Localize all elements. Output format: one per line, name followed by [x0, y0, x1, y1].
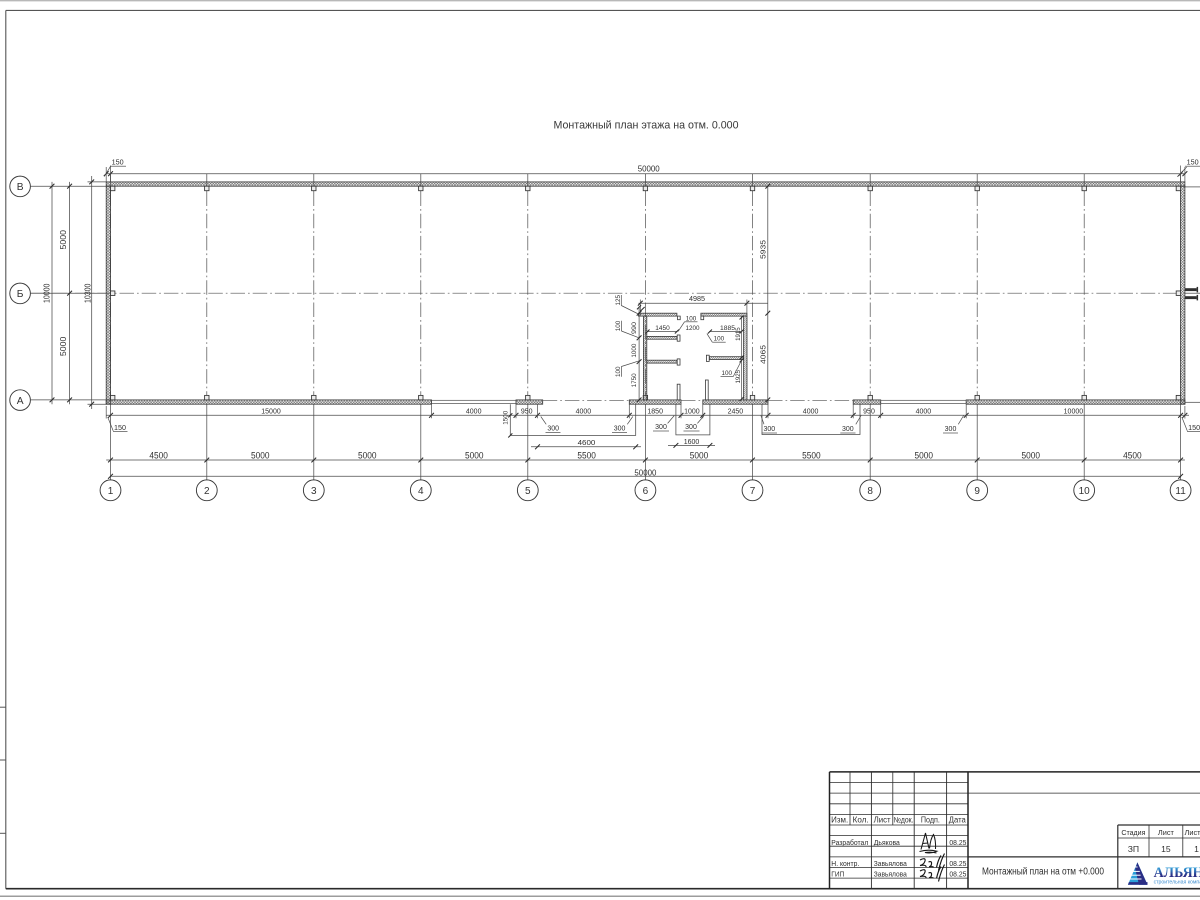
svg-text:1000: 1000 — [631, 343, 638, 357]
svg-text:2: 2 — [204, 486, 210, 497]
svg-text:990: 990 — [631, 322, 638, 334]
svg-text:300: 300 — [842, 424, 854, 433]
svg-text:150: 150 — [1187, 159, 1199, 166]
svg-text:1500: 1500 — [502, 411, 509, 425]
svg-text:100: 100 — [714, 336, 725, 343]
svg-text:№док.: №док. — [894, 816, 914, 825]
svg-text:15000: 15000 — [261, 407, 281, 416]
svg-text:15: 15 — [1161, 844, 1171, 854]
svg-text:5000: 5000 — [690, 451, 709, 462]
svg-text:5000: 5000 — [914, 451, 933, 462]
svg-text:08.25: 08.25 — [949, 838, 966, 847]
svg-text:4985: 4985 — [689, 296, 705, 303]
svg-text:7: 7 — [750, 486, 756, 497]
svg-text:1200: 1200 — [686, 325, 700, 332]
svg-text:1750: 1750 — [631, 373, 638, 387]
svg-text:300: 300 — [685, 422, 697, 431]
svg-text:Завьялова: Завьялова — [874, 870, 908, 879]
svg-text:300: 300 — [614, 424, 626, 433]
svg-text:50000: 50000 — [634, 468, 657, 477]
svg-text:1885: 1885 — [720, 325, 735, 332]
svg-text:5000: 5000 — [251, 451, 270, 462]
svg-text:100: 100 — [686, 315, 697, 322]
svg-text:4500: 4500 — [1123, 451, 1142, 462]
svg-text:Стадия: Стадия — [1121, 828, 1145, 837]
svg-text:300: 300 — [945, 424, 957, 433]
svg-text:Монтажный план этажа на отм. 0: Монтажный план этажа на отм. 0.000 — [554, 119, 739, 131]
svg-text:4: 4 — [418, 486, 424, 497]
svg-text:4000: 4000 — [576, 407, 592, 416]
svg-text:Дата: Дата — [949, 816, 967, 825]
svg-text:4065: 4065 — [759, 345, 768, 364]
svg-text:ГИП: ГИП — [831, 870, 844, 879]
svg-text:150: 150 — [1188, 425, 1200, 432]
svg-text:АЛЬЯНС: АЛЬЯНС — [1154, 865, 1200, 881]
svg-text:300: 300 — [547, 424, 559, 433]
svg-text:Б: Б — [17, 289, 24, 300]
svg-text:строительная компания: строительная компания — [1154, 880, 1200, 886]
svg-text:5935: 5935 — [759, 240, 768, 259]
svg-text:3: 3 — [311, 486, 317, 497]
svg-text:100: 100 — [722, 370, 733, 377]
svg-text:Изм.: Изм. — [831, 816, 848, 825]
svg-text:4600: 4600 — [578, 438, 596, 447]
svg-text:9: 9 — [974, 486, 980, 497]
svg-text:1915: 1915 — [735, 327, 742, 341]
svg-text:50000: 50000 — [638, 165, 661, 174]
svg-text:10000: 10000 — [1064, 407, 1084, 416]
svg-text:4000: 4000 — [466, 407, 482, 416]
svg-text:Лист: Лист — [874, 816, 891, 825]
svg-text:1600: 1600 — [684, 437, 700, 446]
svg-text:11: 11 — [1175, 486, 1186, 497]
svg-text:5500: 5500 — [802, 451, 821, 462]
svg-text:300: 300 — [763, 424, 775, 433]
svg-text:5: 5 — [525, 486, 531, 497]
svg-text:Лист: Лист — [1158, 828, 1174, 837]
svg-text:Листов: Листов — [1185, 828, 1200, 837]
svg-text:100: 100 — [615, 366, 622, 377]
svg-text:Монтажный план на отм +0.000: Монтажный план на отм +0.000 — [982, 867, 1104, 878]
svg-text:Кол.: Кол. — [853, 816, 869, 825]
svg-text:4500: 4500 — [149, 451, 168, 462]
svg-text:5000: 5000 — [59, 336, 68, 356]
svg-text:300: 300 — [655, 422, 667, 431]
svg-text:150: 150 — [112, 159, 124, 166]
svg-text:Подп.: Подп. — [921, 816, 940, 825]
svg-text:8: 8 — [867, 486, 873, 497]
svg-text:1450: 1450 — [655, 325, 670, 332]
svg-text:А: А — [17, 396, 24, 407]
svg-text:4000: 4000 — [916, 407, 932, 416]
svg-text:08.25: 08.25 — [949, 870, 966, 879]
svg-text:1000: 1000 — [684, 407, 700, 416]
svg-text:В: В — [17, 182, 24, 193]
svg-text:5500: 5500 — [577, 451, 596, 462]
svg-text:1: 1 — [1194, 844, 1199, 854]
svg-text:1850: 1850 — [647, 407, 663, 416]
svg-text:ЗП: ЗП — [1128, 844, 1139, 854]
svg-text:5000: 5000 — [465, 451, 484, 462]
svg-text:150: 150 — [114, 425, 126, 432]
svg-text:2450: 2450 — [728, 407, 744, 416]
svg-text:5000: 5000 — [358, 451, 377, 462]
svg-text:950: 950 — [521, 407, 533, 416]
svg-text:08.25: 08.25 — [949, 859, 966, 868]
svg-text:5000: 5000 — [59, 229, 68, 249]
svg-text:Н. контр.: Н. контр. — [831, 859, 859, 868]
svg-text:Завьялова: Завьялова — [874, 859, 908, 868]
svg-text:10300: 10300 — [83, 283, 92, 303]
svg-text:10000: 10000 — [43, 283, 52, 303]
svg-text:950: 950 — [863, 407, 875, 416]
svg-text:Дьякова: Дьякова — [874, 838, 901, 847]
svg-text:1: 1 — [108, 486, 114, 497]
svg-text:10: 10 — [1079, 486, 1091, 497]
svg-text:4000: 4000 — [803, 407, 819, 416]
svg-text:Разработал: Разработал — [831, 838, 868, 847]
svg-text:5000: 5000 — [1021, 451, 1040, 462]
svg-text:6: 6 — [643, 486, 649, 497]
svg-text:100: 100 — [615, 321, 622, 332]
